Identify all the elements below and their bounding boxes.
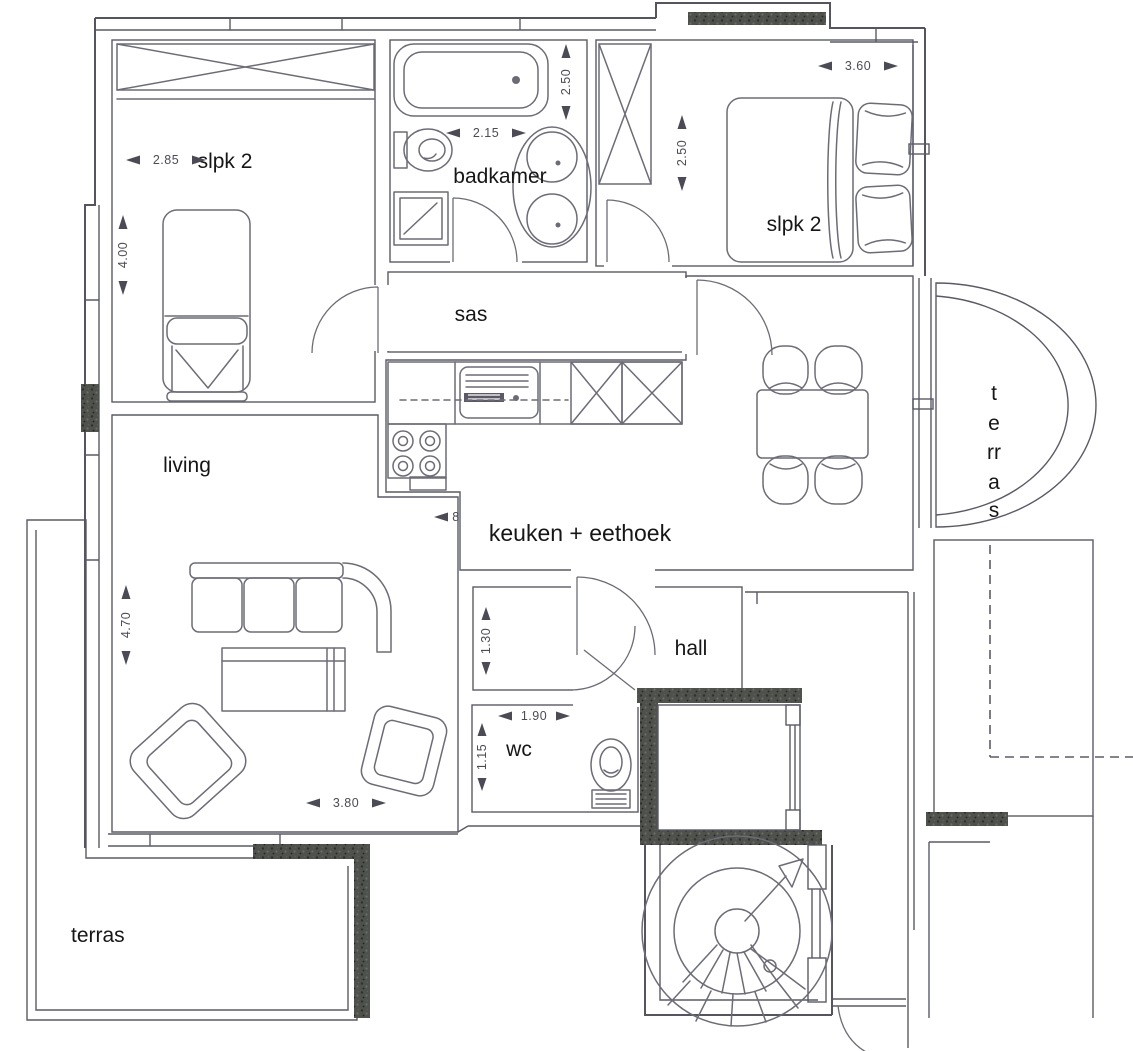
dim-kitchen-partial: 8 bbox=[434, 510, 460, 524]
svg-text:8: 8 bbox=[452, 510, 459, 524]
svg-text:s: s bbox=[989, 499, 1000, 522]
threshold-lines bbox=[833, 999, 906, 1006]
label-bedroom-left: slpk 2 bbox=[198, 150, 253, 173]
room-wc bbox=[472, 705, 638, 812]
bed-single-symbol bbox=[163, 210, 250, 401]
label-bedroom-right: slpk 2 bbox=[767, 213, 822, 236]
dim-hall-height: 1.30 bbox=[479, 607, 493, 675]
corridor-east-line bbox=[908, 592, 914, 1048]
wall-hatch-top bbox=[688, 12, 826, 25]
spiral-staircase-symbol bbox=[642, 836, 832, 1026]
floor-plan-page: slpk 2 badkamer slpk 2 sas keuken + eeth… bbox=[0, 0, 1133, 1051]
opening-wc bbox=[573, 688, 639, 707]
wardrobe-left-symbol bbox=[117, 44, 374, 99]
opening-bedroom-right bbox=[604, 258, 672, 270]
svg-text:rr: rr bbox=[987, 441, 1001, 464]
label-sas: sas bbox=[455, 303, 488, 326]
shower-symbol bbox=[394, 192, 448, 245]
dim-bedroom-right-height: 2.50 bbox=[675, 115, 689, 191]
door-arc-kitchen bbox=[697, 280, 772, 355]
bed-double-symbol bbox=[727, 98, 913, 262]
window-kitchen-east bbox=[919, 278, 931, 528]
door-arc-wc bbox=[571, 626, 635, 690]
stair-side-door bbox=[812, 889, 820, 958]
wall-hatch-right-bottom bbox=[926, 812, 1008, 826]
svg-text:2.85: 2.85 bbox=[153, 153, 179, 167]
neighbour-terrace-dashed bbox=[990, 545, 1133, 757]
dim-bedroom-right-width: 3.60 bbox=[818, 59, 898, 73]
corridor-top-line bbox=[745, 592, 908, 604]
wall-hatch-west bbox=[81, 384, 99, 432]
dim-wc-height: 1.15 bbox=[475, 723, 489, 791]
wall-hatch-terrace-east bbox=[354, 844, 370, 1018]
room-bedroom-right bbox=[596, 40, 913, 266]
svg-text:t: t bbox=[991, 382, 997, 405]
lift-door bbox=[790, 725, 795, 810]
label-hall: hall bbox=[675, 637, 708, 660]
stair-door-jamb-top bbox=[808, 845, 826, 889]
label-terrace-bottom: terras bbox=[71, 924, 125, 947]
door-arc-bedroom-right bbox=[607, 200, 669, 262]
svg-text:e: e bbox=[988, 412, 1000, 435]
door-arc-stairwell bbox=[838, 1006, 866, 1051]
dim-bedroom-left-height: 4.00 bbox=[116, 215, 130, 295]
toilet-wc-symbol bbox=[591, 739, 631, 808]
svg-text:1.30: 1.30 bbox=[479, 628, 493, 654]
svg-text:2.15: 2.15 bbox=[473, 126, 499, 140]
lift-door-jamb-bottom bbox=[786, 810, 800, 830]
floor-plan-drawing: slpk 2 badkamer slpk 2 sas keuken + eeth… bbox=[0, 0, 1133, 1051]
wall-south-wc bbox=[458, 826, 642, 832]
stairwell-wall-outer bbox=[645, 845, 832, 1015]
stove-symbol bbox=[388, 424, 446, 490]
wall-hatch-hall-south bbox=[637, 688, 802, 703]
svg-text:1.15: 1.15 bbox=[475, 744, 489, 770]
door-arc-bedroom-left bbox=[312, 287, 378, 353]
dim-bathroom-height: 2.50 bbox=[559, 44, 573, 120]
svg-text:a: a bbox=[988, 471, 1000, 494]
wall-hatch-stair-north bbox=[642, 830, 822, 845]
neighbour-terrace bbox=[934, 540, 1093, 816]
svg-text:3.60: 3.60 bbox=[845, 59, 871, 73]
wall-hatch-south bbox=[253, 844, 368, 859]
dim-living-width: 3.80 bbox=[306, 796, 386, 810]
svg-text:1.90: 1.90 bbox=[521, 709, 547, 723]
opening-bedroom-left bbox=[371, 285, 392, 351]
room-sas bbox=[388, 272, 686, 352]
right-bottom-lines bbox=[929, 816, 1093, 1018]
dim-bedroom-left-width: 2.85 bbox=[126, 153, 206, 167]
room-labels: slpk 2 badkamer slpk 2 sas keuken + eeth… bbox=[71, 150, 1001, 947]
svg-text:2.50: 2.50 bbox=[559, 69, 573, 95]
opening-bathroom bbox=[450, 256, 522, 268]
svg-text:4.00: 4.00 bbox=[116, 242, 130, 268]
svg-text:2.50: 2.50 bbox=[675, 140, 689, 166]
label-living: living bbox=[163, 454, 211, 477]
sofa-symbol bbox=[190, 563, 391, 652]
toilet-bathroom-symbol bbox=[394, 129, 452, 171]
window-ticks-top bbox=[230, 18, 520, 30]
dim-wc-width: 1.90 bbox=[498, 709, 570, 723]
armchair-left-symbol bbox=[124, 697, 253, 825]
door-arc-bathroom bbox=[453, 198, 517, 262]
label-bathroom: badkamer bbox=[453, 165, 546, 188]
dim-living-height: 4.70 bbox=[119, 585, 133, 665]
wall-hatch-wc-east bbox=[640, 688, 658, 845]
lift-door-jamb-top bbox=[786, 705, 800, 725]
coffee-table-symbol bbox=[222, 648, 345, 711]
label-kitchen: keuken + eethoek bbox=[489, 520, 672, 546]
label-terrace-right: t e rr a s bbox=[987, 382, 1001, 522]
stair-door-jamb-bottom bbox=[808, 958, 826, 1002]
wardrobe-right-symbol bbox=[599, 44, 651, 184]
dining-set-symbol bbox=[757, 346, 868, 504]
terrace-right-inner-line bbox=[936, 296, 1068, 515]
bathtub-symbol bbox=[394, 44, 548, 116]
svg-text:3.80: 3.80 bbox=[333, 796, 359, 810]
label-wc: wc bbox=[505, 738, 532, 761]
svg-text:4.70: 4.70 bbox=[119, 612, 133, 638]
dim-bathroom-width: 2.15 bbox=[446, 126, 526, 140]
armchair-right-symbol bbox=[358, 703, 449, 799]
window-tick-kitchen bbox=[913, 399, 933, 409]
door-openings bbox=[371, 256, 699, 707]
wall-west-window bbox=[85, 205, 99, 848]
lift-shaft bbox=[658, 705, 800, 830]
kitchen-counter-symbol bbox=[388, 362, 682, 424]
